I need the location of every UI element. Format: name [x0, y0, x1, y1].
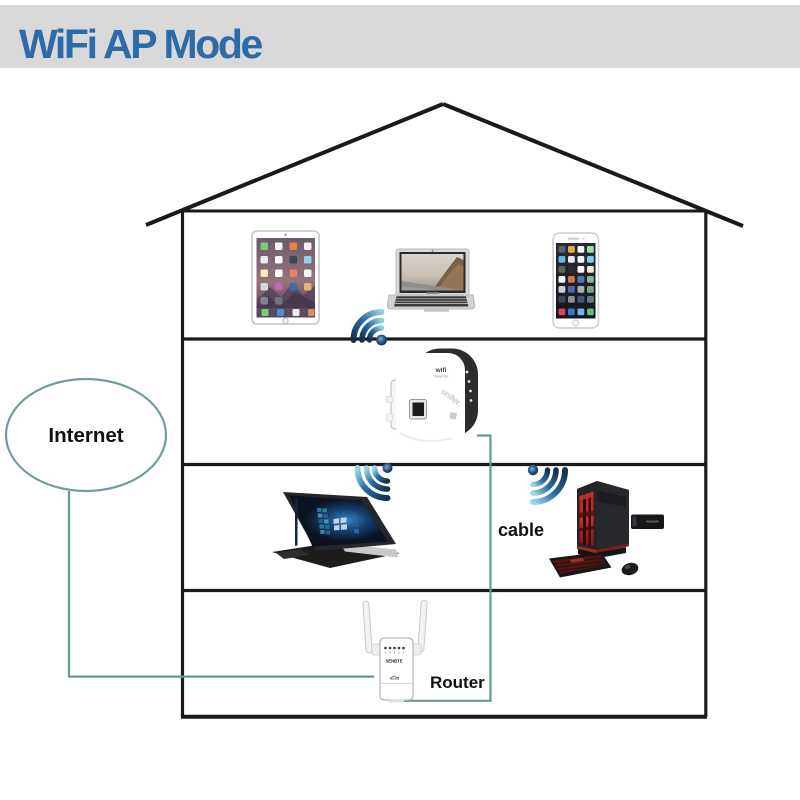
svg-text:wifi: wifi — [435, 367, 447, 374]
svg-text:cable: cable — [498, 520, 544, 540]
svg-text:SENBTE: SENBTE — [386, 659, 403, 664]
svg-text:Router: Router — [430, 673, 485, 692]
svg-text:REPEATER: REPEATER — [435, 375, 449, 379]
svg-text:Internet: Internet — [48, 424, 123, 447]
svg-text:WiFi AP Mode: WiFi AP Mode — [19, 21, 262, 67]
